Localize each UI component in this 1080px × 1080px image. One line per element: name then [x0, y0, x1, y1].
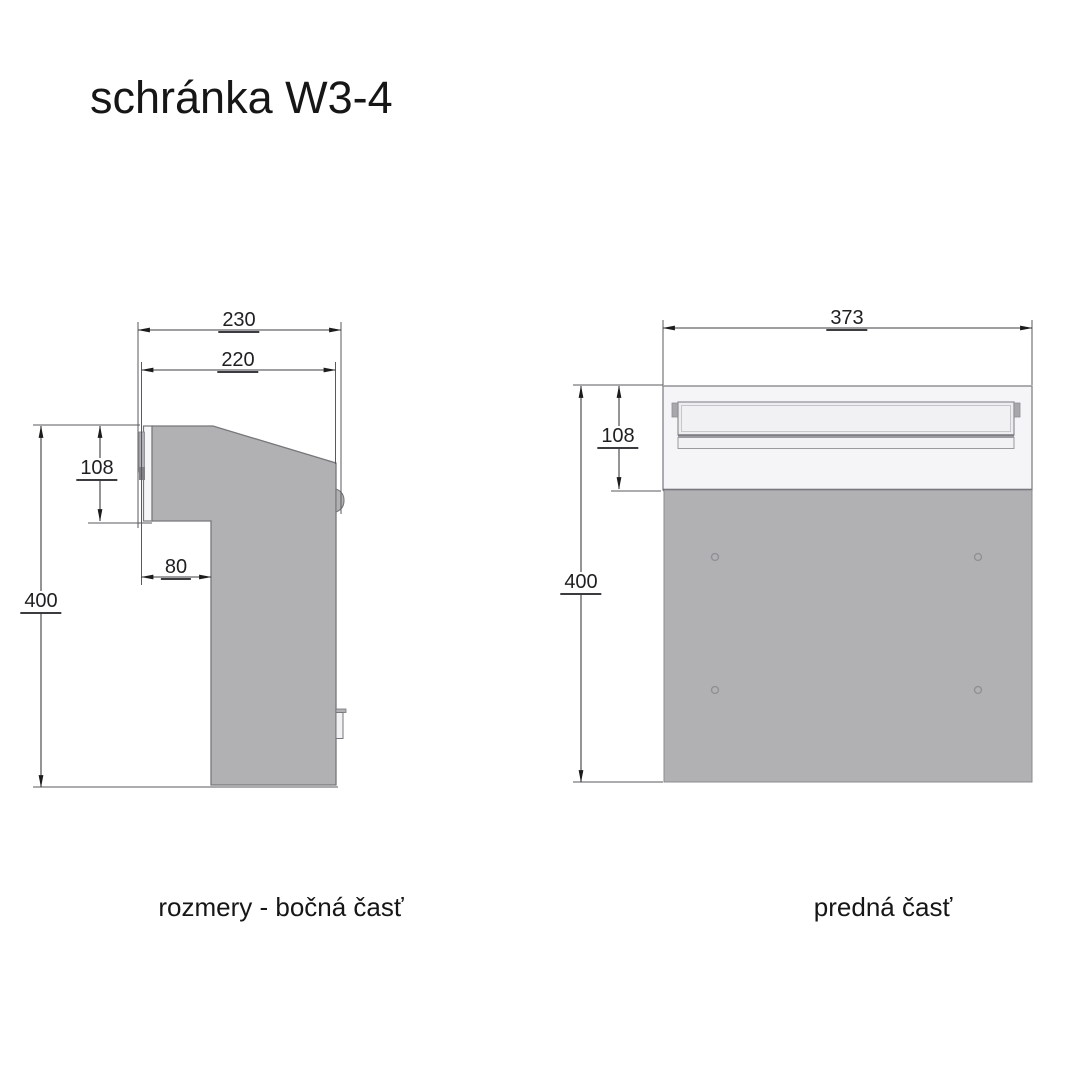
- dim-label-side-total-depth: 230: [218, 310, 259, 333]
- dim-label-side-body-depth: 220: [217, 350, 258, 373]
- dim-label-side-total-height: 400: [20, 591, 61, 614]
- side-lock-bump: [336, 489, 344, 512]
- front-body: [664, 490, 1032, 782]
- side-view-caption: rozmery - bočná časť: [158, 892, 403, 923]
- side-body-profile: [152, 426, 336, 785]
- dim-label-side-foot-inset: 80: [161, 557, 191, 580]
- side-latch-tab: [336, 709, 346, 713]
- flap-end-tab-right: [1014, 403, 1020, 417]
- dim-label-front-total-width: 373: [826, 308, 867, 331]
- dim-label-front-total-height: 400: [560, 572, 601, 595]
- front-view-caption: predná časť: [814, 892, 952, 923]
- side-latch: [336, 713, 343, 739]
- mail-slot-sill: [678, 438, 1014, 449]
- dim-label-side-door-height: 108: [76, 458, 117, 481]
- drawing-canvas: schránka W3-4: [0, 0, 1080, 1080]
- flap-end-tab-left: [672, 403, 678, 417]
- dim-label-front-panel-height: 108: [597, 426, 638, 449]
- mail-slot-flap-inner: [682, 406, 1011, 432]
